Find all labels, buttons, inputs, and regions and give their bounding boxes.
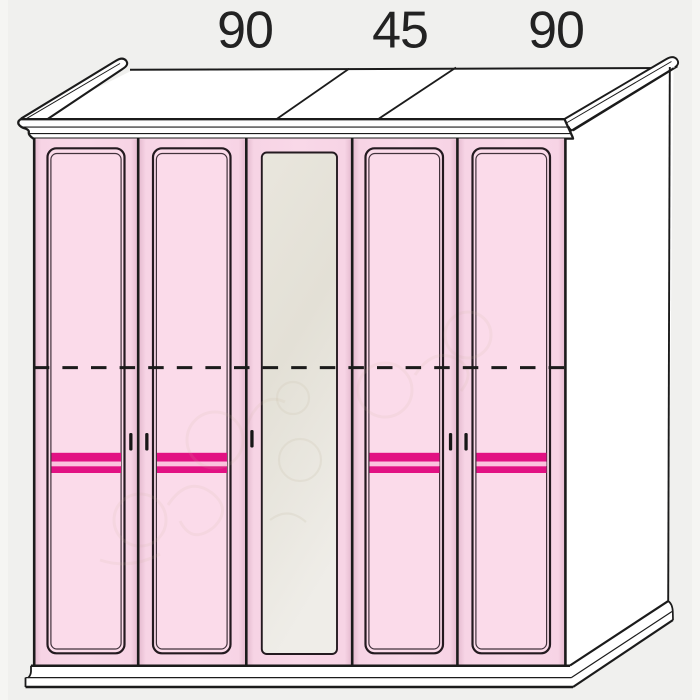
svg-text:90: 90 xyxy=(217,2,273,60)
svg-text:90: 90 xyxy=(528,2,584,60)
svg-text:45: 45 xyxy=(372,2,428,60)
